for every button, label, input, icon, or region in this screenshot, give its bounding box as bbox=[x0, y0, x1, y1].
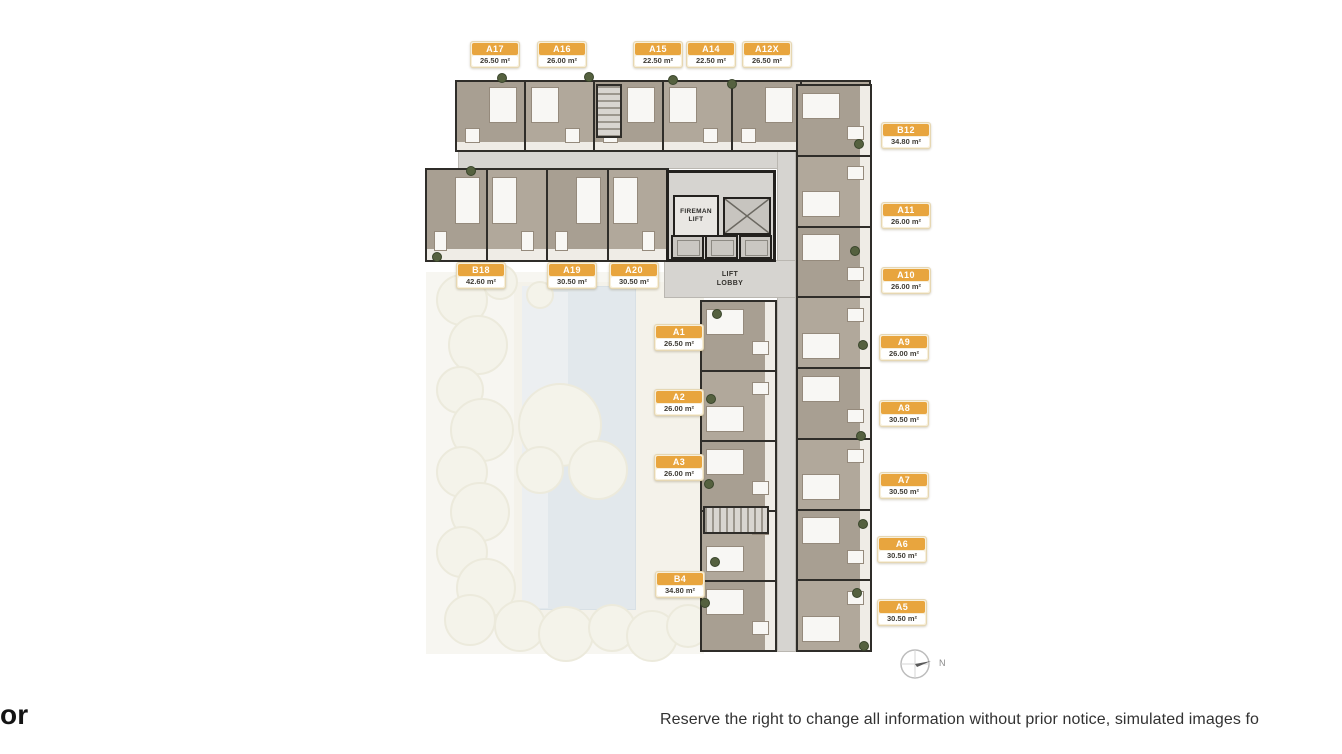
unit-area: 26.00 m² bbox=[656, 469, 702, 479]
compass-north-label: N bbox=[939, 658, 946, 668]
unit-badge-A1[interactable]: A126.50 m² bbox=[654, 324, 704, 351]
unit-area: 22.50 m² bbox=[635, 56, 681, 66]
unit-id: A5 bbox=[879, 601, 925, 613]
unit-area: 30.50 m² bbox=[879, 551, 925, 561]
unit-id: A7 bbox=[881, 474, 927, 486]
unit-badge-B4[interactable]: B434.80 m² bbox=[655, 571, 705, 598]
disclaimer-text: Reserve the right to change all informat… bbox=[660, 711, 1259, 729]
unit-badge-layer: A1726.50 m²A1626.00 m²A1522.50 m²A1422.5… bbox=[0, 0, 1342, 754]
unit-id: A17 bbox=[472, 43, 518, 55]
unit-badge-A15[interactable]: A1522.50 m² bbox=[633, 41, 683, 68]
unit-badge-A20[interactable]: A2030.50 m² bbox=[609, 262, 659, 289]
unit-id: A15 bbox=[635, 43, 681, 55]
unit-id: A9 bbox=[881, 336, 927, 348]
unit-badge-A17[interactable]: A1726.50 m² bbox=[470, 41, 520, 68]
unit-badge-A16[interactable]: A1626.00 m² bbox=[537, 41, 587, 68]
unit-badge-A12X[interactable]: A12X26.50 m² bbox=[742, 41, 792, 68]
unit-id: B18 bbox=[458, 264, 504, 276]
unit-id: A2 bbox=[656, 391, 702, 403]
unit-id: A3 bbox=[656, 456, 702, 468]
unit-area: 34.80 m² bbox=[657, 586, 703, 596]
unit-badge-A6[interactable]: A630.50 m² bbox=[877, 536, 927, 563]
compass-icon bbox=[898, 646, 938, 686]
unit-area: 26.00 m² bbox=[883, 282, 929, 292]
unit-area: 26.00 m² bbox=[883, 217, 929, 227]
unit-badge-A14[interactable]: A1422.50 m² bbox=[686, 41, 736, 68]
unit-area: 26.00 m² bbox=[881, 349, 927, 359]
unit-area: 26.50 m² bbox=[744, 56, 790, 66]
compass: N bbox=[898, 646, 958, 690]
unit-id: A20 bbox=[611, 264, 657, 276]
unit-id: A6 bbox=[879, 538, 925, 550]
unit-area: 30.50 m² bbox=[611, 277, 657, 287]
unit-area: 26.00 m² bbox=[656, 404, 702, 414]
unit-area: 30.50 m² bbox=[881, 415, 927, 425]
unit-id: B12 bbox=[883, 124, 929, 136]
unit-badge-A9[interactable]: A926.00 m² bbox=[879, 334, 929, 361]
unit-area: 30.50 m² bbox=[549, 277, 595, 287]
unit-badge-B12[interactable]: B1234.80 m² bbox=[881, 122, 931, 149]
unit-id: A8 bbox=[881, 402, 927, 414]
unit-badge-A10[interactable]: A1026.00 m² bbox=[881, 267, 931, 294]
floor-plan-page: LIFT LOBBY FIREMAN LIFT A1726.50 m²A1626… bbox=[0, 0, 1342, 754]
unit-badge-A8[interactable]: A830.50 m² bbox=[879, 400, 929, 427]
unit-area: 26.50 m² bbox=[656, 339, 702, 349]
unit-badge-A7[interactable]: A730.50 m² bbox=[879, 472, 929, 499]
unit-area: 26.50 m² bbox=[472, 56, 518, 66]
unit-id: A16 bbox=[539, 43, 585, 55]
unit-area: 42.60 m² bbox=[458, 277, 504, 287]
unit-badge-A2[interactable]: A226.00 m² bbox=[654, 389, 704, 416]
unit-area: 26.00 m² bbox=[539, 56, 585, 66]
unit-id: A1 bbox=[656, 326, 702, 338]
unit-badge-A3[interactable]: A326.00 m² bbox=[654, 454, 704, 481]
unit-area: 22.50 m² bbox=[688, 56, 734, 66]
unit-area: 30.50 m² bbox=[881, 487, 927, 497]
unit-id: A10 bbox=[883, 269, 929, 281]
unit-id: A11 bbox=[883, 204, 929, 216]
unit-id: B4 bbox=[657, 573, 703, 585]
unit-area: 34.80 m² bbox=[883, 137, 929, 147]
unit-badge-A19[interactable]: A1930.50 m² bbox=[547, 262, 597, 289]
unit-id: A12X bbox=[744, 43, 790, 55]
unit-badge-A11[interactable]: A1126.00 m² bbox=[881, 202, 931, 229]
unit-id: A19 bbox=[549, 264, 595, 276]
unit-badge-B18[interactable]: B1842.60 m² bbox=[456, 262, 506, 289]
unit-id: A14 bbox=[688, 43, 734, 55]
page-title-fragment: or bbox=[0, 699, 28, 731]
unit-area: 30.50 m² bbox=[879, 614, 925, 624]
unit-badge-A5[interactable]: A530.50 m² bbox=[877, 599, 927, 626]
